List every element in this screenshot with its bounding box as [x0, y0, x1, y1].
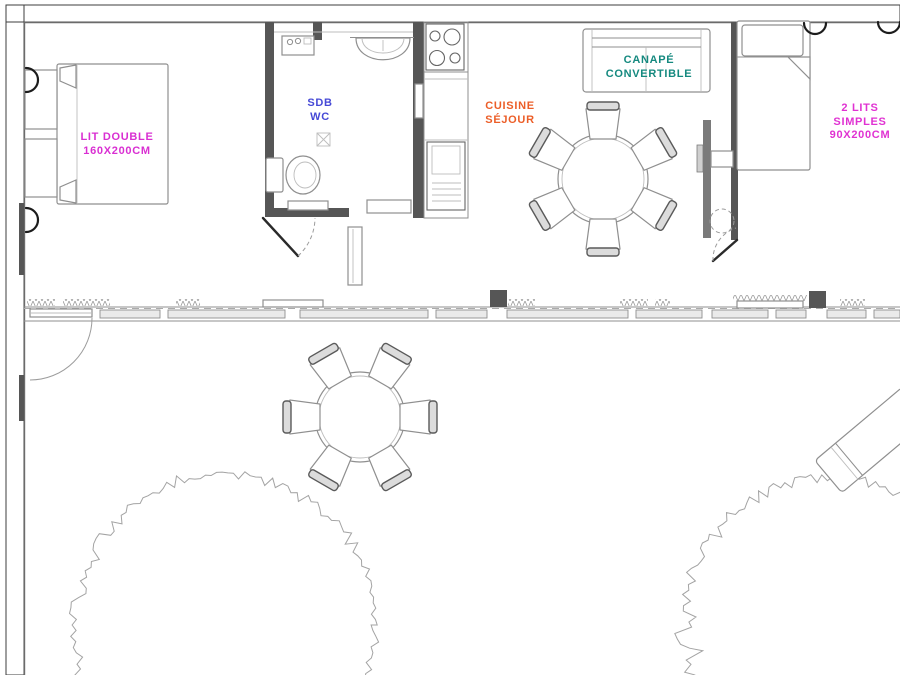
- wall-jamb: [19, 203, 24, 275]
- dining-chair: [586, 219, 620, 256]
- bath-bench: [367, 200, 411, 213]
- sill-hatch: [620, 299, 648, 306]
- sill-hatch: [63, 299, 110, 306]
- sill-hatch: [27, 299, 55, 306]
- facade-post: [809, 291, 826, 308]
- stool: [710, 209, 734, 233]
- label-line: CONVERTIBLE: [588, 68, 710, 82]
- pillow: [742, 25, 803, 56]
- cooktop: [426, 24, 464, 70]
- label-lit-double: LIT DOUBLE 160X200CM: [52, 131, 182, 158]
- outdoor-chair: [283, 400, 320, 434]
- label-line: CANAPÉ: [588, 54, 710, 68]
- floor-drain: [317, 133, 330, 146]
- glazed-facade: [24, 290, 900, 321]
- floor-plan-drawing: [0, 0, 900, 675]
- label-lits-simples: 2 LITS SIMPLES 90X200CM: [808, 102, 900, 143]
- label-line: 2 LITS: [808, 102, 900, 116]
- washbasin: [350, 38, 414, 60]
- tree: [675, 474, 900, 675]
- terrace-door: [30, 309, 92, 380]
- dining-chair: [586, 102, 620, 139]
- nightstand: [25, 70, 57, 129]
- sill-hatch: [733, 295, 807, 301]
- label-line: WC: [285, 111, 355, 125]
- shower-fixture: [415, 84, 423, 118]
- label-cuisine-sejour: CUISINE SÉJOUR: [458, 100, 562, 127]
- sill-hatch: [655, 299, 670, 306]
- label-canape-convertible: CANAPÉ CONVERTIBLE: [588, 54, 710, 81]
- sliding-door-rail: [737, 301, 803, 308]
- bathroom-door: [263, 218, 315, 256]
- sliding-door-rail: [263, 300, 323, 307]
- outdoor-chair: [400, 400, 437, 434]
- toilet: [266, 156, 320, 194]
- floor-plan-canvas: LIT DOUBLE 160X200CM SDB WC CUISINE SÉJO…: [0, 0, 900, 675]
- tall-cabinet: [348, 227, 362, 285]
- sun-lounger: [815, 387, 900, 492]
- label-line: SDB: [285, 97, 355, 111]
- sill-hatch: [176, 299, 200, 306]
- label-line: SÉJOUR: [458, 114, 562, 128]
- label-line: CUISINE: [458, 100, 562, 114]
- label-line: 160X200CM: [52, 145, 182, 159]
- wall-jamb: [19, 375, 24, 421]
- label-sdb-wc: SDB WC: [285, 97, 355, 124]
- outdoor-dining-table: [283, 342, 437, 492]
- label-line: 90X200CM: [808, 129, 900, 143]
- sill-hatch: [840, 299, 865, 306]
- washing-machine: [282, 36, 314, 55]
- tree: [70, 472, 379, 675]
- label-line: LIT DOUBLE: [52, 131, 182, 145]
- facade-post: [490, 290, 507, 307]
- single-bed: [737, 21, 810, 170]
- oven-fridge-column: [427, 142, 465, 210]
- fold-down-desk: [697, 145, 734, 233]
- radiator: [288, 201, 328, 210]
- wall-lamp-icon: [26, 208, 38, 232]
- wall-lamp-icon: [878, 22, 900, 33]
- label-line: SIMPLES: [808, 116, 900, 130]
- sill-hatch: [508, 299, 535, 306]
